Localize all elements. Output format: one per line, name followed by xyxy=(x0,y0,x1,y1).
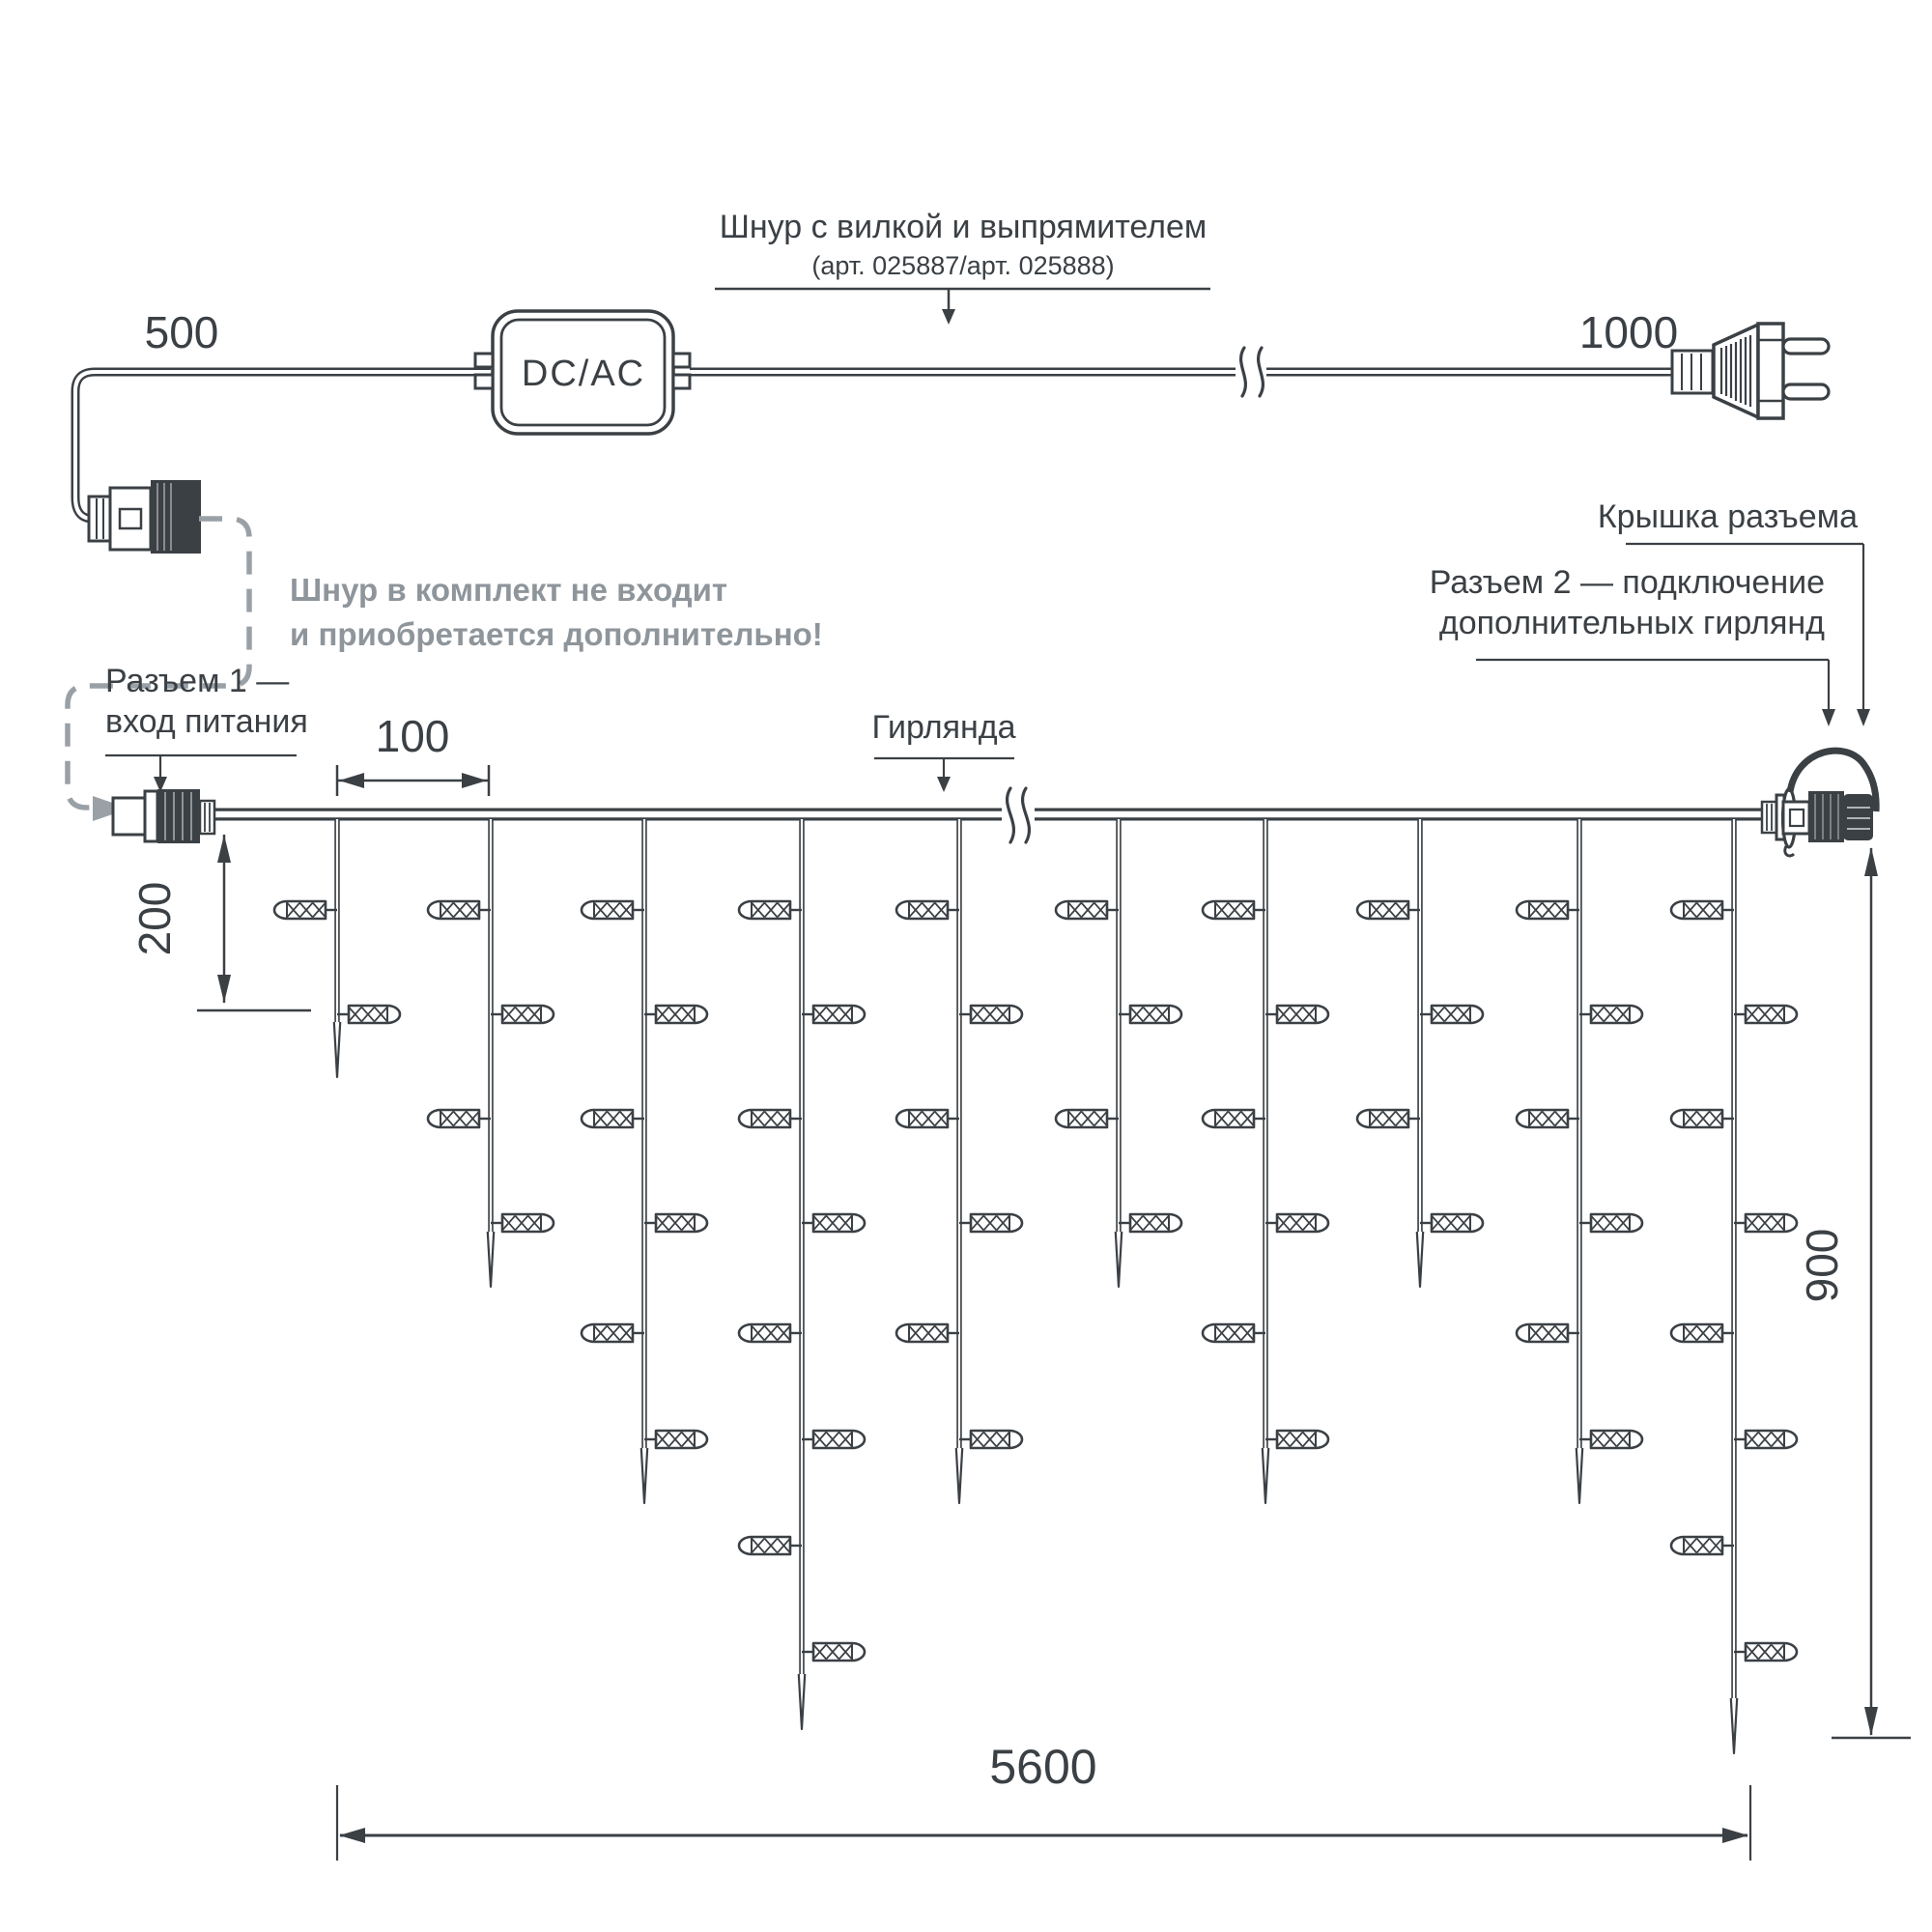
led-bulb xyxy=(1203,901,1265,919)
led-bulb xyxy=(1671,901,1734,919)
svg-text:200: 200 xyxy=(129,882,180,956)
garland-drop xyxy=(896,819,1022,1503)
led-bulb xyxy=(1357,1110,1420,1127)
dim-100: 100 xyxy=(337,711,489,796)
svg-text:вход питания: вход питания xyxy=(105,703,308,740)
svg-text:дополнительных гирлянд: дополнительных гирлянд xyxy=(1439,605,1825,641)
garland-drop xyxy=(582,819,707,1503)
svg-text:Гирлянда: Гирлянда xyxy=(871,709,1015,746)
led-bulb xyxy=(491,1214,554,1232)
garland-drop xyxy=(1357,819,1483,1287)
cord-end-connector xyxy=(89,480,201,554)
title-arrow-icon xyxy=(942,309,955,325)
led-bulb xyxy=(491,1006,554,1023)
cord-title: Шнур с вилкой и выпрямителем xyxy=(720,209,1207,245)
led-bulb xyxy=(1203,1110,1265,1127)
led-bulb xyxy=(1671,1324,1734,1342)
garland-drop xyxy=(739,819,865,1729)
dim-900: 900 xyxy=(1797,847,1911,1738)
garland-break-icon xyxy=(1023,788,1030,842)
led-bulb xyxy=(739,1110,802,1127)
garland-label: Гирлянда xyxy=(871,709,1015,792)
cord-break-icon xyxy=(1241,348,1246,396)
led-bulb xyxy=(1056,901,1119,919)
drop-needle-tip xyxy=(1263,1448,1268,1503)
garland-input-connector xyxy=(113,789,214,843)
wiring-diagram: Шнур с вилкой и выпрямителем (арт. 02588… xyxy=(0,0,1932,1932)
led-bulb xyxy=(644,1006,707,1023)
led-bulb xyxy=(959,1431,1022,1448)
led-bulb xyxy=(1579,1214,1642,1232)
led-bulb xyxy=(1734,1431,1797,1448)
cover-arrow-icon xyxy=(1857,709,1870,726)
drop-needle-tip xyxy=(799,1674,805,1729)
drop-needle-tip xyxy=(334,1022,340,1077)
mains-plug xyxy=(1672,324,1829,418)
led-bulb xyxy=(739,1324,802,1342)
led-bulb xyxy=(1734,1006,1797,1023)
cord-subtitle: (арт. 025887/арт. 025888) xyxy=(811,251,1114,280)
led-bulb xyxy=(582,901,644,919)
led-bulb xyxy=(1517,1324,1579,1342)
led-bulb xyxy=(582,1110,644,1127)
led-bulb xyxy=(1056,1110,1119,1127)
led-bulb xyxy=(1671,1537,1734,1554)
garland-break-icon xyxy=(1008,788,1014,842)
led-bulb xyxy=(428,1110,491,1127)
led-bulb xyxy=(1265,1214,1328,1232)
led-bulb xyxy=(1203,1324,1265,1342)
garland-drawing xyxy=(214,788,1797,1753)
led-bulb xyxy=(644,1214,707,1232)
connector1-label: Разъем 1 — вход питания xyxy=(105,663,308,792)
garland-drop xyxy=(1203,819,1328,1503)
svg-text:100: 100 xyxy=(376,711,450,761)
drop-needle-tip xyxy=(641,1448,647,1503)
garland-arrow-icon xyxy=(937,777,951,792)
led-bulb xyxy=(644,1431,707,1448)
plug-face xyxy=(1758,324,1783,418)
led-bulb xyxy=(1357,901,1420,919)
connector2-arrow-icon xyxy=(1822,709,1835,726)
led-bulb xyxy=(896,1324,959,1342)
svg-text:Крышка разъема: Крышка разъема xyxy=(1598,498,1858,535)
drop-needle-tip xyxy=(1577,1448,1582,1503)
led-bulb xyxy=(582,1324,644,1342)
dim-200: 200 xyxy=(129,835,311,1010)
drop-needle-tip xyxy=(1116,1232,1122,1287)
led-bulb xyxy=(802,1643,865,1661)
led-bulb xyxy=(896,901,959,919)
garland-output-connector xyxy=(1762,751,1876,856)
led-bulb xyxy=(1420,1214,1483,1232)
plug-prong xyxy=(1783,339,1829,354)
svg-text:900: 900 xyxy=(1797,1229,1847,1303)
garland-drop xyxy=(428,819,554,1287)
garland-drop xyxy=(1671,819,1797,1753)
led-bulb xyxy=(802,1006,865,1023)
led-bulb xyxy=(428,901,491,919)
led-bulb xyxy=(1734,1643,1797,1661)
led-bulb xyxy=(1579,1431,1642,1448)
led-bulb xyxy=(1265,1006,1328,1023)
led-bulb xyxy=(274,901,337,919)
dim-500-label: 500 xyxy=(145,307,219,357)
led-bulb xyxy=(1119,1006,1181,1023)
led-bulb xyxy=(1734,1214,1797,1232)
garland-drop xyxy=(274,819,400,1077)
led-bulb xyxy=(1265,1431,1328,1448)
led-bulb xyxy=(739,1537,802,1554)
note-line2: и приобретается дополнительно! xyxy=(290,616,823,652)
led-bulb xyxy=(1517,1110,1579,1127)
garland-drop xyxy=(1056,819,1181,1287)
led-bulb xyxy=(1517,901,1579,919)
garland-drop xyxy=(1517,819,1642,1503)
led-bulb xyxy=(1671,1110,1734,1127)
drop-needle-tip xyxy=(488,1232,494,1287)
led-bulb xyxy=(802,1214,865,1232)
led-bulb xyxy=(802,1431,865,1448)
power-cord-section: Шнур с вилкой и выпрямителем (арт. 02588… xyxy=(75,209,1829,554)
led-bulb xyxy=(1579,1006,1642,1023)
note-line1: Шнур в комплект не входит xyxy=(290,572,727,608)
svg-text:5600: 5600 xyxy=(989,1740,1096,1794)
dim-1000-label: 1000 xyxy=(1579,307,1678,357)
led-bulb xyxy=(337,1006,400,1023)
led-bulb xyxy=(896,1110,959,1127)
led-bulb xyxy=(1420,1006,1483,1023)
plug-prong xyxy=(1783,384,1829,399)
svg-text:Разъем 2 — подключение: Разъем 2 — подключение xyxy=(1430,564,1825,601)
dcac-coupler-left xyxy=(475,354,493,367)
svg-text:Разъем 1 —: Разъем 1 — xyxy=(105,663,289,699)
dcac-converter: DC/AC xyxy=(475,311,690,434)
dcac-label: DC/AC xyxy=(522,354,645,394)
led-bulb xyxy=(959,1214,1022,1232)
drop-needle-tip xyxy=(1731,1698,1737,1753)
drop-needle-tip xyxy=(956,1448,962,1503)
led-bulb xyxy=(1119,1214,1181,1232)
led-bulb xyxy=(739,901,802,919)
connector2-label: Разъем 2 — подключение дополнительных ги… xyxy=(1430,564,1835,726)
dim-5600: 5600 xyxy=(337,1740,1750,1861)
led-bulb xyxy=(959,1006,1022,1023)
drop-needle-tip xyxy=(1417,1232,1423,1287)
dcac-coupler-right xyxy=(673,354,690,367)
